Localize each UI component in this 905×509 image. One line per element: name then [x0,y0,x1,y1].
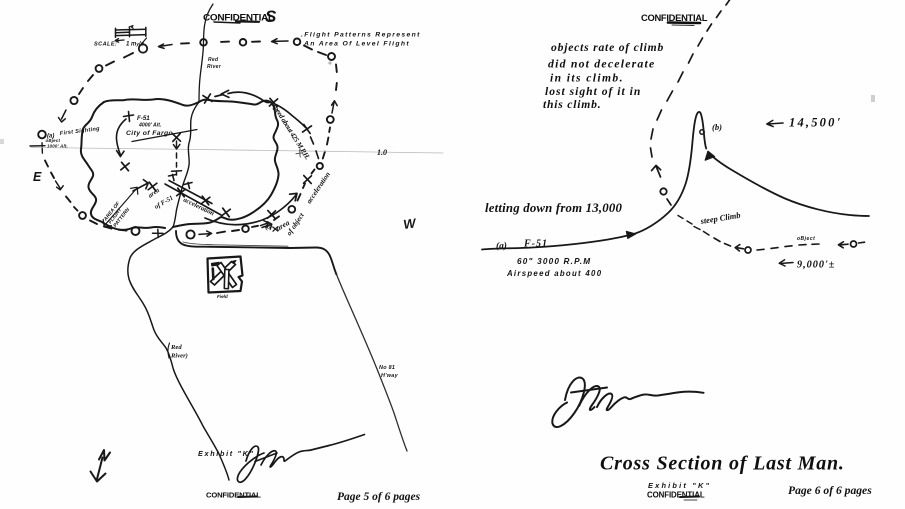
svg-text:H'way: H'way [381,373,399,379]
svg-text:SCALE:: SCALE: [94,42,117,48]
svg-text:S: S [265,7,277,26]
svg-text:(b): (b) [712,122,722,132]
svg-text:City of Fargo: City of Fargo [126,130,173,137]
svg-text:CONFIDENTIAL: CONFIDENTIAL [647,491,705,500]
svg-text:Exhibit "K": Exhibit "K" [198,449,255,458]
svg-text:4000' Alt.: 4000' Alt. [138,123,161,129]
svg-text:Cross Section of Last Man.: Cross Section of Last Man. [600,453,845,475]
svg-text:Red: Red [170,344,182,351]
svg-text:1.0: 1.0 [377,148,387,157]
svg-text:9,000'±: 9,000'± [797,260,835,271]
svg-text:objects rate of climb: objects rate of climb [551,41,664,54]
svg-text:F-51: F-51 [137,115,150,122]
svg-text:E: E [33,170,42,184]
svg-text:Red: Red [208,57,219,63]
svg-text:this climb.: this climb. [543,98,601,111]
svg-text:River: River [207,64,222,70]
svg-text:.Flight Patterns Represent: .Flight Patterns Represent [301,32,421,39]
svg-text:in its climb.: in its climb. [550,72,624,85]
svg-text:Page 5 of 6 pages: Page 5 of 6 pages [337,491,421,503]
svg-text:CONFIDENTIAL: CONFIDENTIAL [206,491,261,500]
svg-text:Field: Field [217,294,228,299]
svg-text:60" 3000 R.P.M: 60" 3000 R.P.M [517,257,591,266]
svg-text:did not decelerate: did not decelerate [548,57,655,71]
svg-text:letting down from 13,000: letting down from 13,000 [485,201,622,215]
svg-text:Exhibit "K": Exhibit "K" [648,481,711,490]
svg-text:lost sight of it in: lost sight of it in [545,85,641,98]
svg-text:An Area Of Level Flight: An Area Of Level Flight [303,41,410,48]
svg-text:oBject: oBject [46,138,61,143]
svg-text:River): River) [170,353,188,360]
svg-text:Page 6 of 6 pages: Page 6 of 6 pages [788,484,872,497]
svg-text:(a): (a) [496,241,507,252]
svg-text:Airspeed about 400: Airspeed about 400 [506,269,602,278]
svg-text:No 81: No 81 [379,365,395,371]
svg-text:14,500': 14,500' [789,116,842,130]
svg-text:F-51: F-51 [523,239,548,250]
svg-text:oBject: oBject [797,236,815,242]
